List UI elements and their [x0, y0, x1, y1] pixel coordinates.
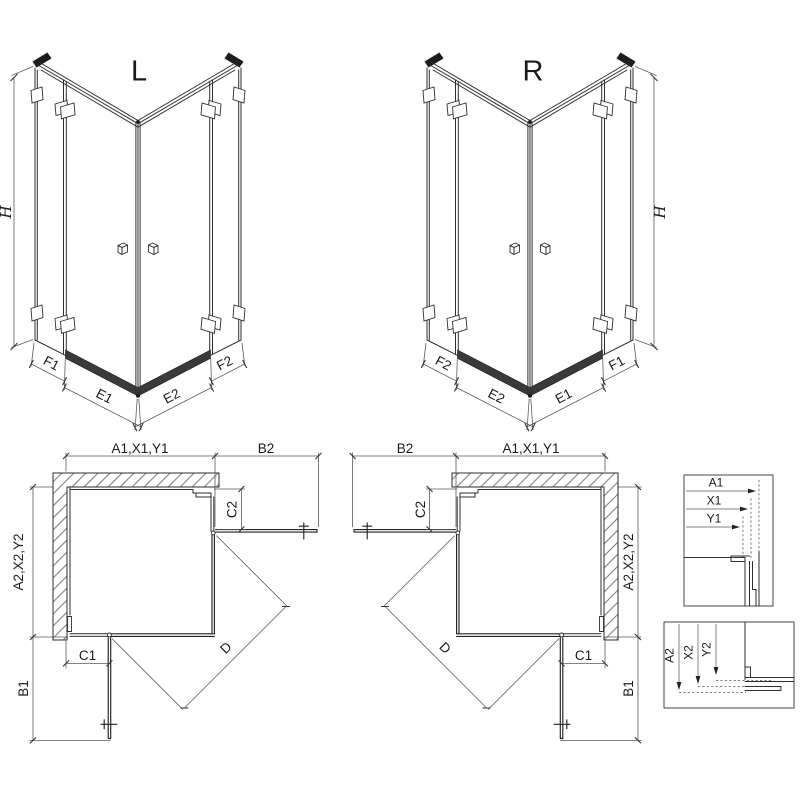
arrowhead-a1-icon — [748, 489, 756, 494]
detail-box-vertical — [664, 622, 794, 708]
dim-label-b1-right-plan: B1 — [621, 680, 636, 697]
dim-label-c1-right-plan: C1 — [575, 648, 592, 663]
dim-label-width-left-plan: A1,X1,Y1 — [111, 441, 168, 456]
dim-label-width-right-plan: A1,X1,Y1 — [502, 441, 559, 456]
wall-hatch-right-plan — [452, 473, 618, 640]
dim-label-c1-left-plan: C1 — [79, 648, 96, 663]
dim-label-e1-right-iso: E1 — [553, 386, 575, 407]
arrowhead-y1-icon — [732, 525, 740, 530]
dim-label-b2-left-plan: B2 — [258, 441, 275, 456]
detail-label-x2: X2 — [682, 645, 696, 660]
dim-label-e2-left-iso: E2 — [161, 386, 183, 407]
wall-hatch-left-plan — [53, 473, 219, 640]
height-dim-label-left: H — [0, 205, 15, 220]
iso-view-right — [421, 53, 657, 432]
dim-label-d-left-plan: D — [217, 639, 235, 657]
dim-label-b2-right-plan: B2 — [397, 441, 414, 456]
dim-label-d-right-plan: D — [436, 639, 454, 657]
variant-label-right: R — [523, 56, 544, 88]
arrowhead-x2-icon — [696, 676, 701, 684]
dim-label-depth-right-plan: A2,X2,Y2 — [621, 533, 636, 590]
detail-label-a1: A1 — [709, 476, 724, 490]
dim-label-e1-left-iso: E1 — [94, 386, 116, 407]
dim-label-c2-left-plan: C2 — [225, 501, 240, 518]
arrowhead-a2-icon — [677, 682, 682, 690]
detail-label-x1: X1 — [707, 494, 722, 508]
technical-drawing-page: L H F1 E1 E2 F2 R H F2 E2 E1 F1 A1,X1,Y1… — [0, 0, 800, 800]
dim-label-b1-left-plan: B1 — [16, 680, 31, 697]
plan-view-right — [350, 453, 642, 744]
iso-view-left — [11, 53, 247, 432]
dim-label-e2-right-iso: E2 — [486, 386, 508, 407]
detail-label-a2: A2 — [663, 648, 677, 663]
shower-enclosure-drawing: L H F1 E1 E2 F2 R H F2 E2 E1 F1 A1,X1,Y1… — [0, 0, 800, 800]
detail-label-y2: Y2 — [700, 642, 714, 657]
detail-box-horizontal — [684, 475, 773, 606]
dim-label-c2-right-plan: C2 — [413, 501, 428, 518]
arrowhead-y2-icon — [714, 667, 719, 675]
detail-label-y1: Y1 — [707, 512, 722, 526]
height-dim-label-right: H — [651, 205, 669, 220]
arrowhead-x1-icon — [740, 507, 748, 512]
variant-label-left: L — [131, 56, 147, 88]
plan-view-left — [30, 453, 322, 744]
dim-label-depth-left-plan: A2,X2,Y2 — [11, 533, 26, 590]
